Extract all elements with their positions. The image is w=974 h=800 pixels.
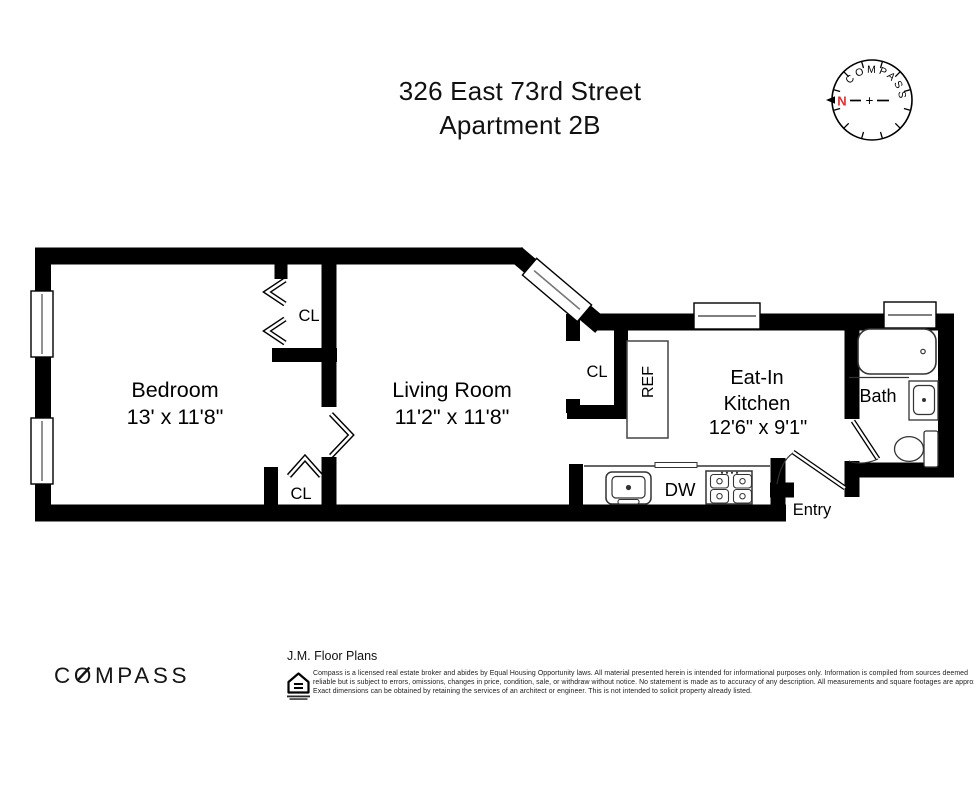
north-arrow-icon (826, 96, 835, 103)
closet-label-kitchen: CL (586, 363, 607, 381)
counter-seam (655, 463, 697, 468)
compass-rose-icon: COMPASS N + (826, 60, 912, 140)
living-room-dims: 11'2" x 11'8" (395, 405, 510, 429)
bedroom-label: Bedroom (131, 378, 218, 402)
bedroom-window (31, 418, 53, 484)
living-room-diagonal-window (522, 258, 591, 321)
bath-sink-icon (909, 381, 938, 420)
needle-plus: + (866, 93, 874, 108)
kitchen-window (694, 303, 760, 329)
toilet-icon (895, 431, 939, 467)
legal-disclaimer: Compass is a licensed real estate broker… (313, 669, 953, 697)
kitchen-sink-icon (606, 472, 651, 504)
kitchen-dims: 12'6" x 9'1" (709, 417, 808, 439)
equal-housing-icon (287, 674, 310, 700)
bathtub-icon (858, 329, 936, 374)
compass-logo-wordmark: COMPASS (54, 663, 190, 688)
closet-label-top: CL (298, 307, 319, 325)
entry-label: Entry (793, 501, 832, 519)
floor-plan-credit: J.M. Floor Plans (287, 649, 377, 663)
bath-door-icon (849, 421, 878, 463)
kitchen-label-line2: Kitchen (724, 393, 791, 415)
bifold-door-icon (267, 280, 285, 343)
bath-window (884, 302, 936, 328)
bedroom-window (31, 291, 53, 357)
stove-icon (706, 471, 752, 504)
north-label: N (837, 94, 846, 109)
dishwasher-label: DW (665, 479, 696, 500)
disclaimer-line: Compass is a licensed real estate broker… (313, 669, 953, 678)
closet-label-bottom: CL (290, 485, 311, 503)
living-room-label: Living Room (392, 378, 512, 402)
windows (31, 258, 936, 484)
footer-graphics: COMPASS (54, 663, 310, 700)
refrigerator-label: REF (640, 366, 657, 398)
bath-label: Bath (859, 386, 896, 406)
disclaimer-line: Exact dimensions can be obtained by reta… (313, 687, 953, 696)
kitchen-label-line1: Eat-In (730, 367, 783, 389)
folding-door-icon (289, 414, 351, 476)
disclaimer-line: reliable but is subject to errors, omiss… (313, 678, 953, 687)
bedroom-dims: 13' x 11'8" (127, 405, 224, 429)
floor-plan-page: 326 East 73rd Street Apartment 2B COMPAS… (0, 0, 974, 800)
